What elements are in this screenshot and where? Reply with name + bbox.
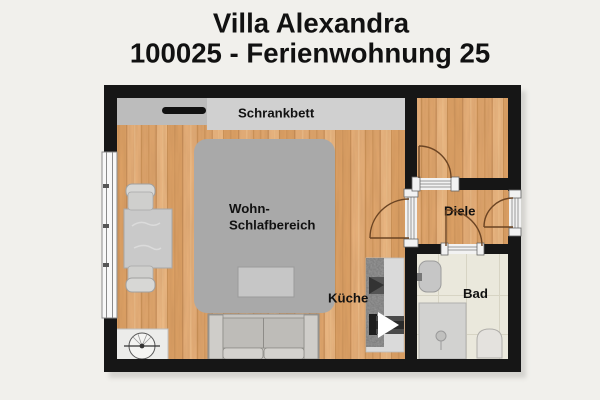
svg-text:100025 - Ferienwohnung 25: 100025 - Ferienwohnung 25 [130, 38, 490, 69]
svg-text:Bad: Bad [463, 286, 488, 301]
svg-text:Diele: Diele [444, 204, 476, 219]
svg-text:Küche: Küche [328, 291, 368, 306]
svg-text:Schlafbereich: Schlafbereich [229, 218, 316, 233]
svg-text:Schrankbett: Schrankbett [238, 106, 315, 121]
svg-text:Wohn-: Wohn- [229, 201, 270, 216]
svg-text:Villa Alexandra: Villa Alexandra [213, 8, 410, 39]
